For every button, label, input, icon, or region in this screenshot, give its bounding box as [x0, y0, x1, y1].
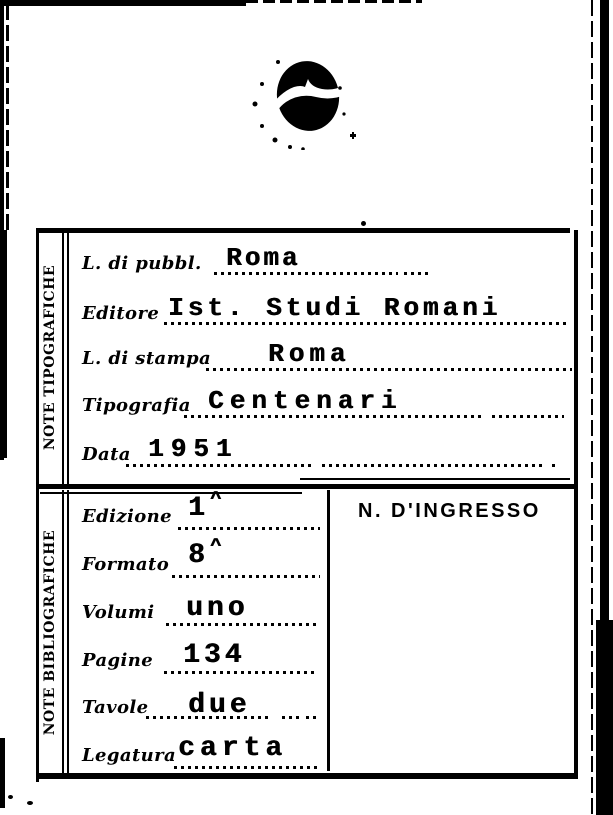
field-label: Formato: [82, 554, 169, 575]
field-label: Tavole: [82, 697, 149, 718]
field-label: Pagine: [82, 650, 153, 671]
field-label: Tipografia: [82, 395, 191, 416]
dotted-rule: [552, 464, 556, 467]
field-label: Editore: [82, 303, 159, 324]
dotted-rule: [282, 716, 300, 719]
card-border-right: [574, 230, 578, 778]
dotted-rule: [306, 716, 316, 719]
scan-edge-artifact: [591, 0, 593, 815]
dotted-rule: [214, 272, 398, 275]
card-section-divider: [300, 478, 570, 480]
field-value: 134: [183, 640, 245, 671]
field-value: uno: [186, 593, 248, 624]
section-header-note-bibliografiche: NOTE BIBLIOGRAFICHE: [36, 492, 63, 774]
ingresso-heading: N. D'INGRESSO: [358, 500, 541, 523]
field-label: Data: [82, 444, 131, 465]
dotted-rule: [172, 575, 320, 578]
scan-edge-artifact: [6, 4, 9, 234]
catalog-card-scan: NOTE TIPOGRAFICHE NOTE BIBLIOGRAFICHE L.…: [0, 0, 613, 815]
section-header-note-tipografiche: NOTE TIPOGRAFICHE: [36, 234, 63, 482]
field-value-text: 8: [188, 540, 209, 571]
card-border-bottom: [36, 773, 578, 779]
field-value: carta: [178, 733, 287, 764]
field-value: 1^: [188, 493, 225, 524]
field-label: Edizione: [82, 506, 172, 527]
dotted-rule: [178, 527, 320, 530]
field-value: Roma: [226, 243, 300, 273]
dotted-rule: [322, 464, 544, 467]
dotted-rule: [492, 415, 564, 418]
ink-speck: [361, 221, 366, 226]
header-column-rule: [67, 490, 69, 774]
dotted-rule: [164, 322, 568, 325]
field-value: 1951: [148, 434, 238, 464]
dotted-rule: [174, 766, 320, 769]
scan-edge-artifact: [0, 0, 246, 6]
ingresso-column-rule: [327, 490, 330, 771]
section-header-label: NOTE BIBLIOGRAFICHE: [42, 530, 58, 735]
field-value: Roma: [268, 339, 350, 369]
ink-blot-stamp: [248, 50, 368, 150]
field-label: L. di stampa: [82, 348, 211, 369]
card-section-divider: [40, 492, 302, 494]
ink-speck: [27, 801, 33, 805]
card-section-divider: [36, 484, 578, 489]
dotted-rule: [146, 716, 272, 719]
dotted-rule: [206, 368, 572, 371]
dotted-rule: [164, 671, 318, 674]
dotted-rule: [166, 623, 320, 626]
ordinal-caret: ^: [210, 489, 225, 509]
field-value: 8^: [188, 540, 225, 571]
dotted-rule: [404, 272, 432, 275]
ordinal-caret: ^: [210, 536, 225, 556]
scan-edge-artifact: [0, 230, 7, 458]
scan-edge-artifact: [0, 738, 5, 808]
dotted-rule: [184, 415, 484, 418]
field-value-text: 1: [188, 493, 209, 524]
card-border-top: [36, 228, 570, 233]
field-label: Legatura: [82, 745, 176, 766]
field-label: L. di pubbl.: [82, 253, 202, 274]
dotted-rule: [126, 464, 314, 467]
section-header-label: NOTE TIPOGRAFICHE: [42, 265, 58, 450]
header-column-rule: [67, 233, 69, 484]
field-value: Ist. Studi Romani: [168, 293, 501, 323]
scan-edge-artifact: [596, 620, 613, 815]
field-value: Centenari: [208, 386, 402, 416]
field-label: Volumi: [82, 602, 155, 623]
ink-speck: [8, 795, 13, 799]
scan-edge-artifact: [246, 0, 422, 3]
